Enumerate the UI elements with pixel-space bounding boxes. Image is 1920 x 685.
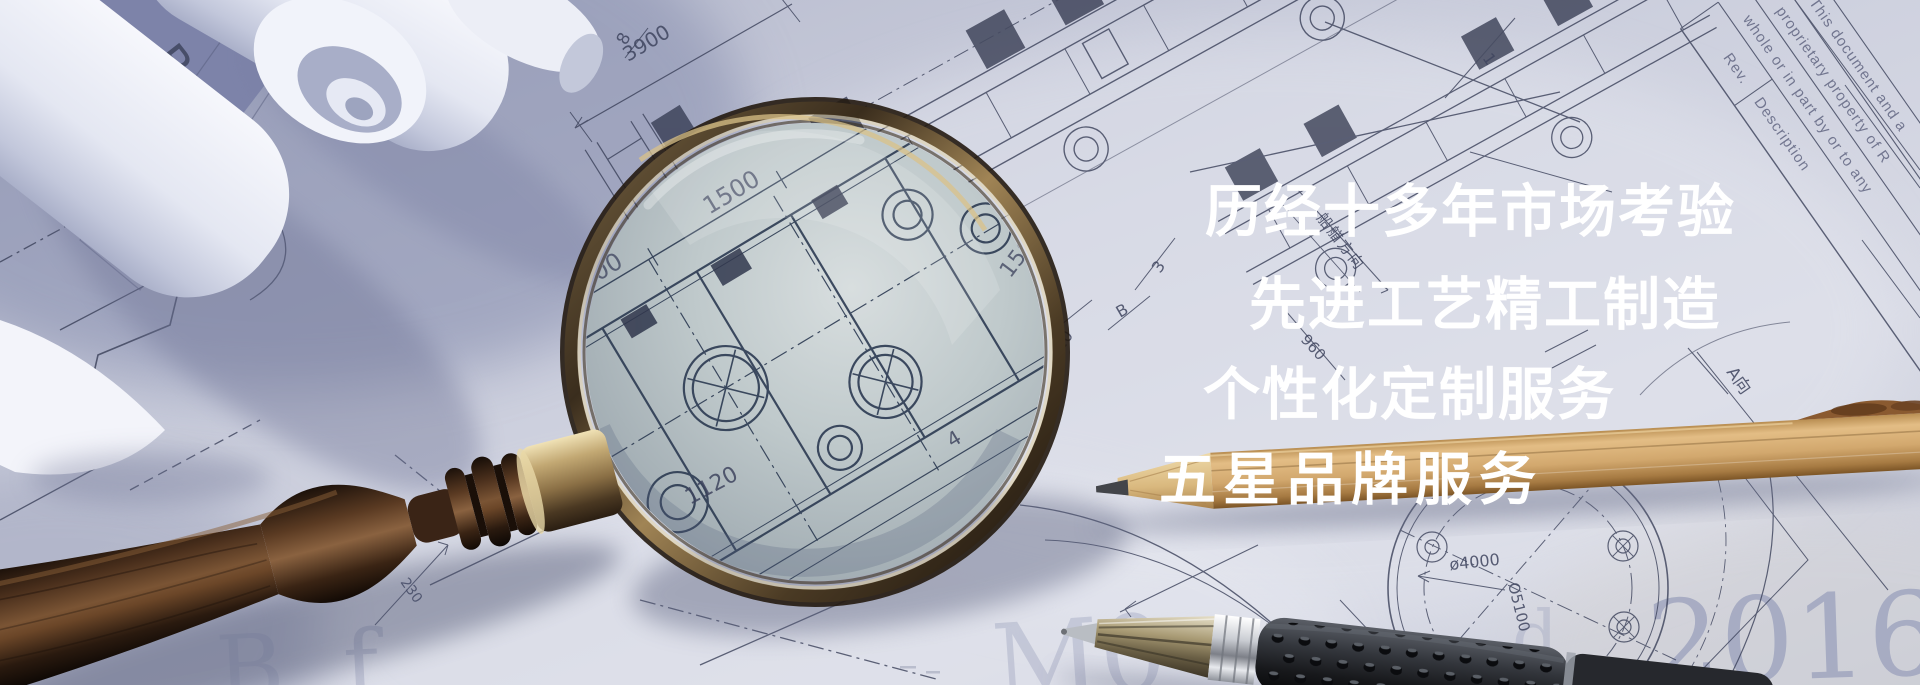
blueprint-scene: B f M0 d 2016— <box>0 0 1920 685</box>
hero-banner: B f M0 d 2016— <box>0 0 1920 685</box>
